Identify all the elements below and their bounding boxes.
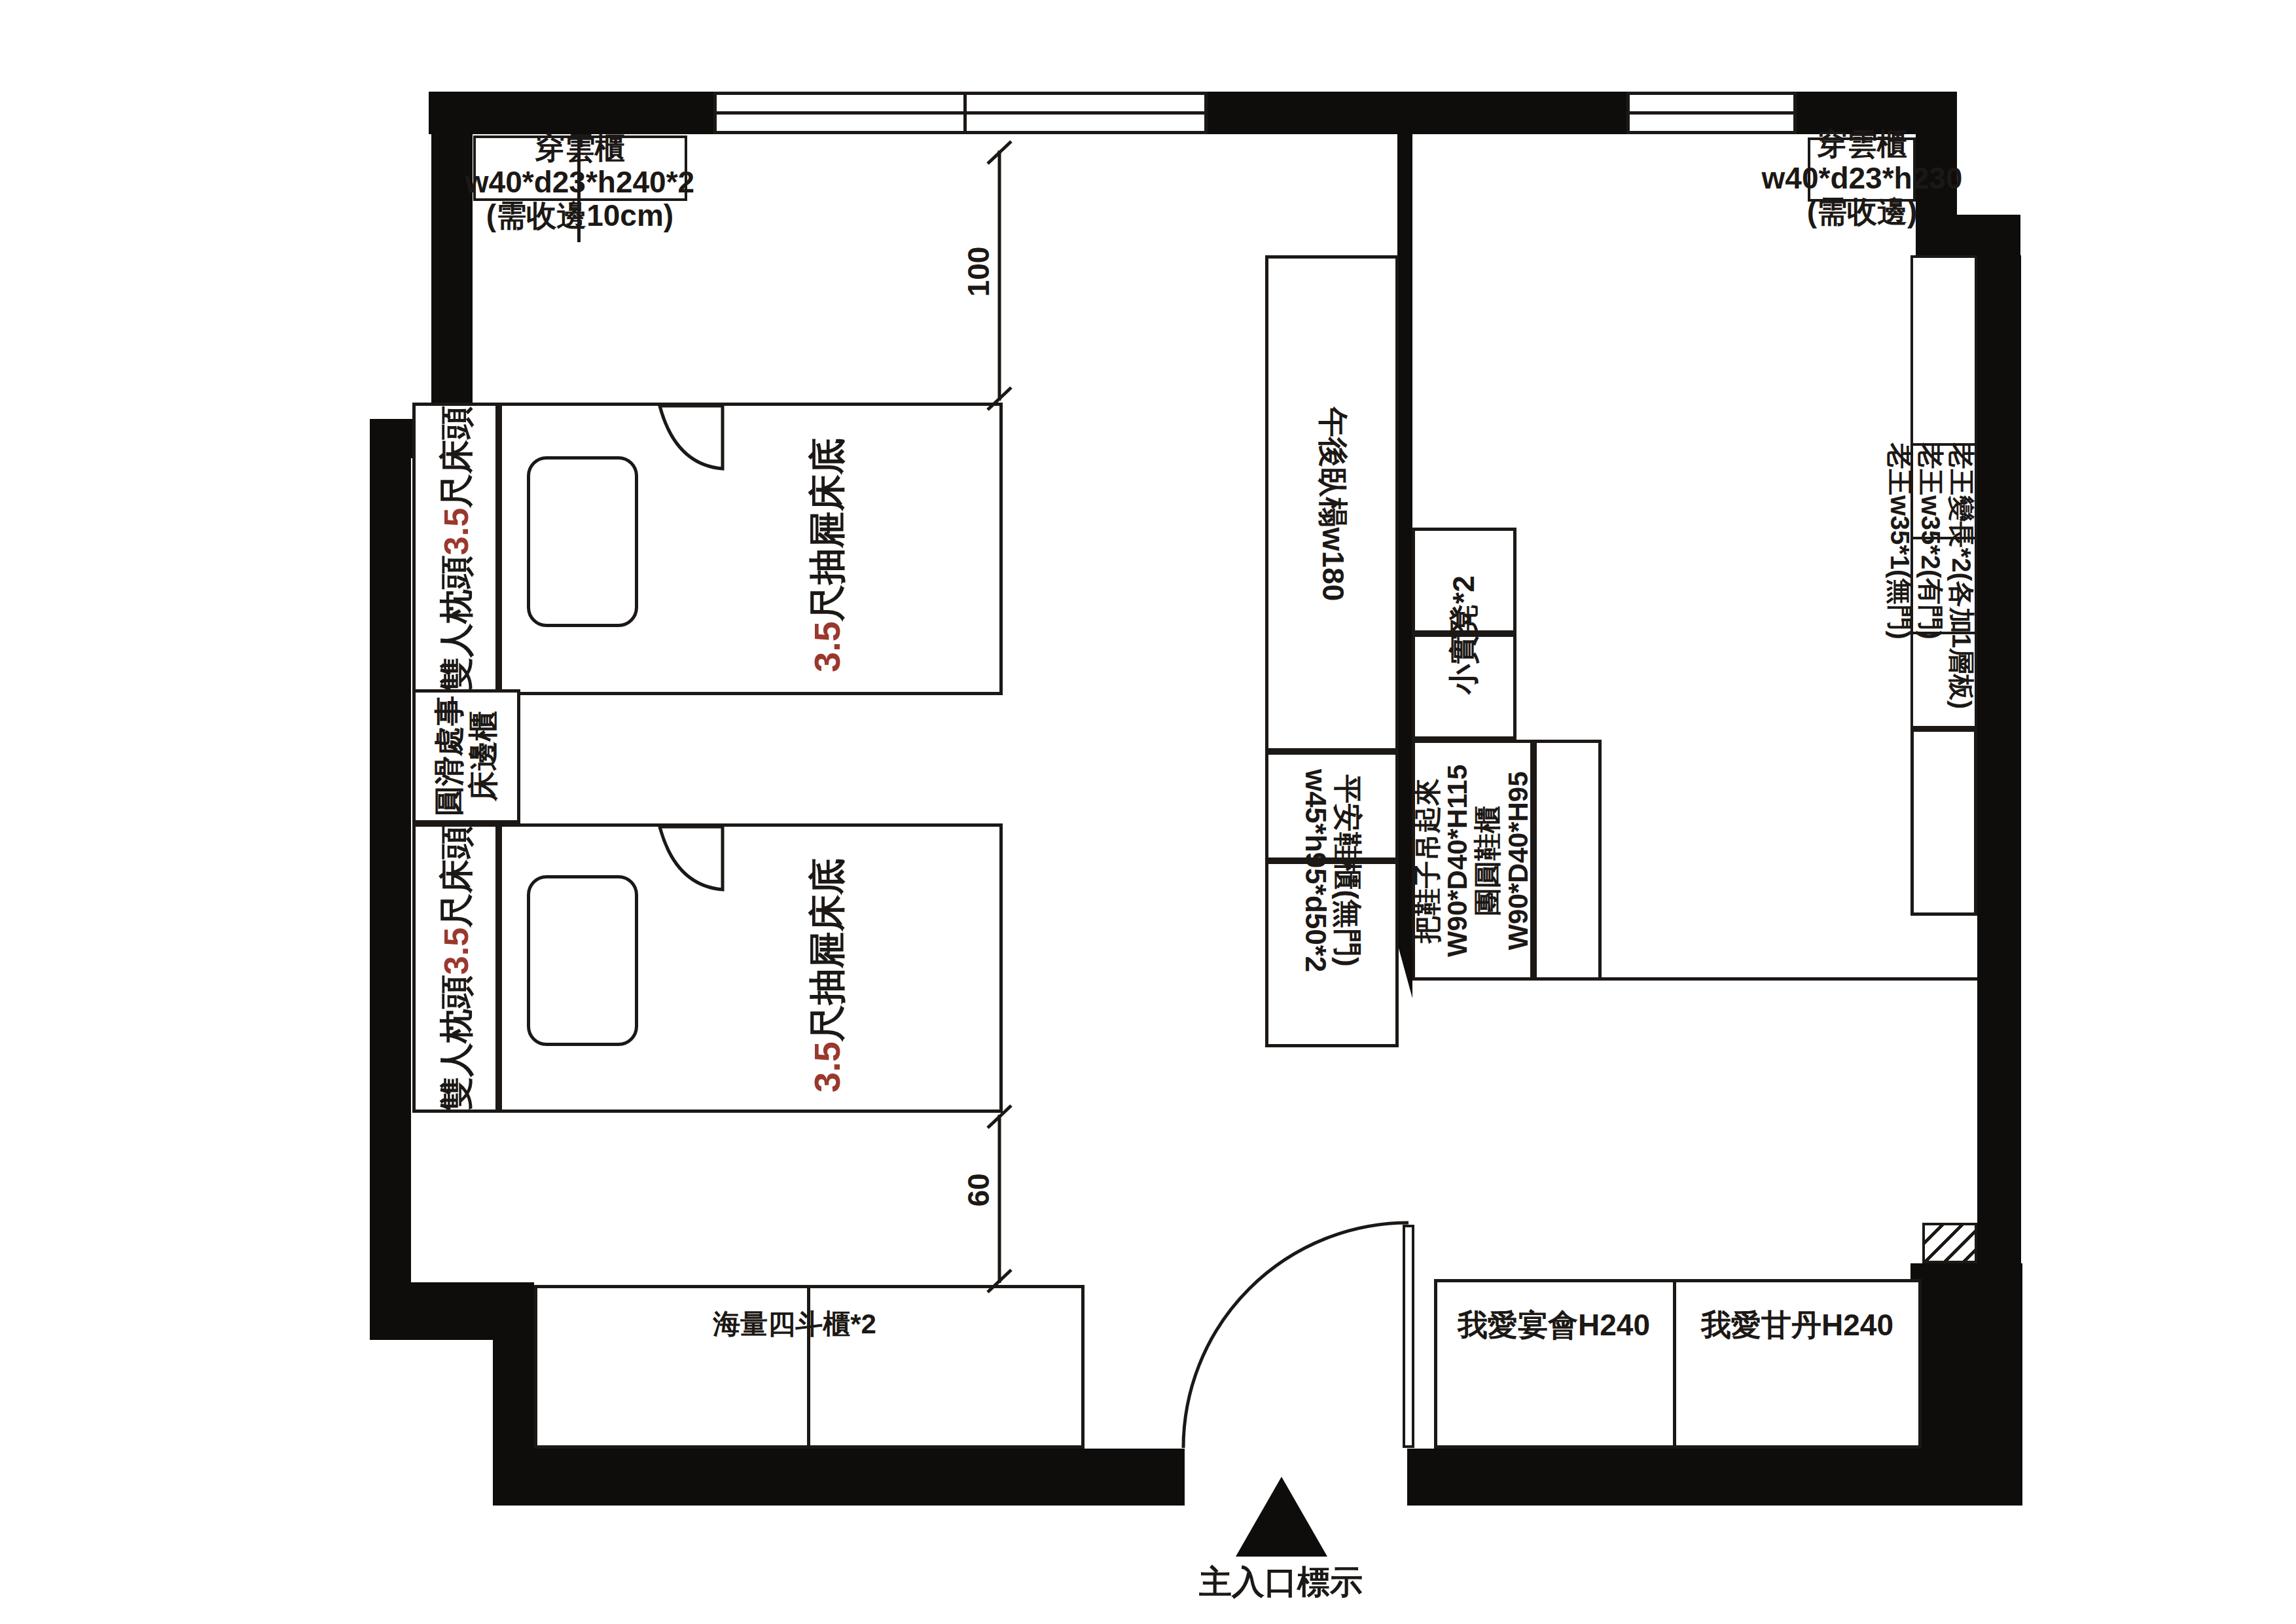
- bed2-blanket-curl-icon: [660, 827, 723, 890]
- daybed-label: 午後臥榻w180: [1316, 407, 1350, 602]
- dimension-top-value: 100: [962, 247, 996, 297]
- closet-left-label: 穿雲櫃 w40*d23*h240*2 (需收邊10cm): [465, 132, 694, 233]
- bed1-base-label: 3.5尺抽屜床底: [807, 438, 848, 672]
- entrance-label: 主入口標示: [1199, 1564, 1363, 1600]
- shelf-label: 老王變長*2(各加1層板) 老王w35*2(有門) 老王w35*1(無門): [1884, 443, 1977, 710]
- wardrobe-left-label: 我愛宴會H240: [1458, 1308, 1650, 1343]
- shoe-hang-label: 把鞋子吊起來 W90*D40*H115 團圓鞋櫃 W90*D40*H95: [1412, 765, 1534, 957]
- bed1-headboard-label: 雙人枕頭3.5尺床頭: [437, 406, 475, 691]
- floor-plan: 穿雲櫃 w40*d23*h240*2 (需收邊10cm) 穿雲櫃 w40*d23…: [0, 0, 2296, 1624]
- bed2-headboard-label: 雙人枕頭3.5尺床頭: [437, 825, 475, 1111]
- dimension-bottom-value: 60: [962, 1173, 996, 1206]
- door-swing-arc: [1183, 1223, 1408, 1448]
- bed2-base-label: 3.5尺抽屜床底: [807, 858, 848, 1092]
- entrance-triangle-icon: [1236, 1477, 1327, 1557]
- wardrobe-right-label: 我愛甘丹H240: [1701, 1308, 1893, 1343]
- central-wall-endcap: [1398, 946, 1412, 998]
- shoe-open-label: 平安鞋櫃(無門) w45*h95*d50*2: [1300, 769, 1365, 973]
- stool-label: 小實凳*2: [1447, 575, 1481, 694]
- overlay-graphics: [0, 0, 2296, 1624]
- closet-right-label: 穿雲櫃 w40*d23*h230 (需收邊): [1762, 128, 1963, 229]
- bedside-cabinet-label: 圓滑處事 床邊櫃: [433, 696, 500, 816]
- chest-label: 海量四斗櫃*2: [713, 1308, 876, 1339]
- bed1-blanket-curl-icon: [660, 406, 723, 469]
